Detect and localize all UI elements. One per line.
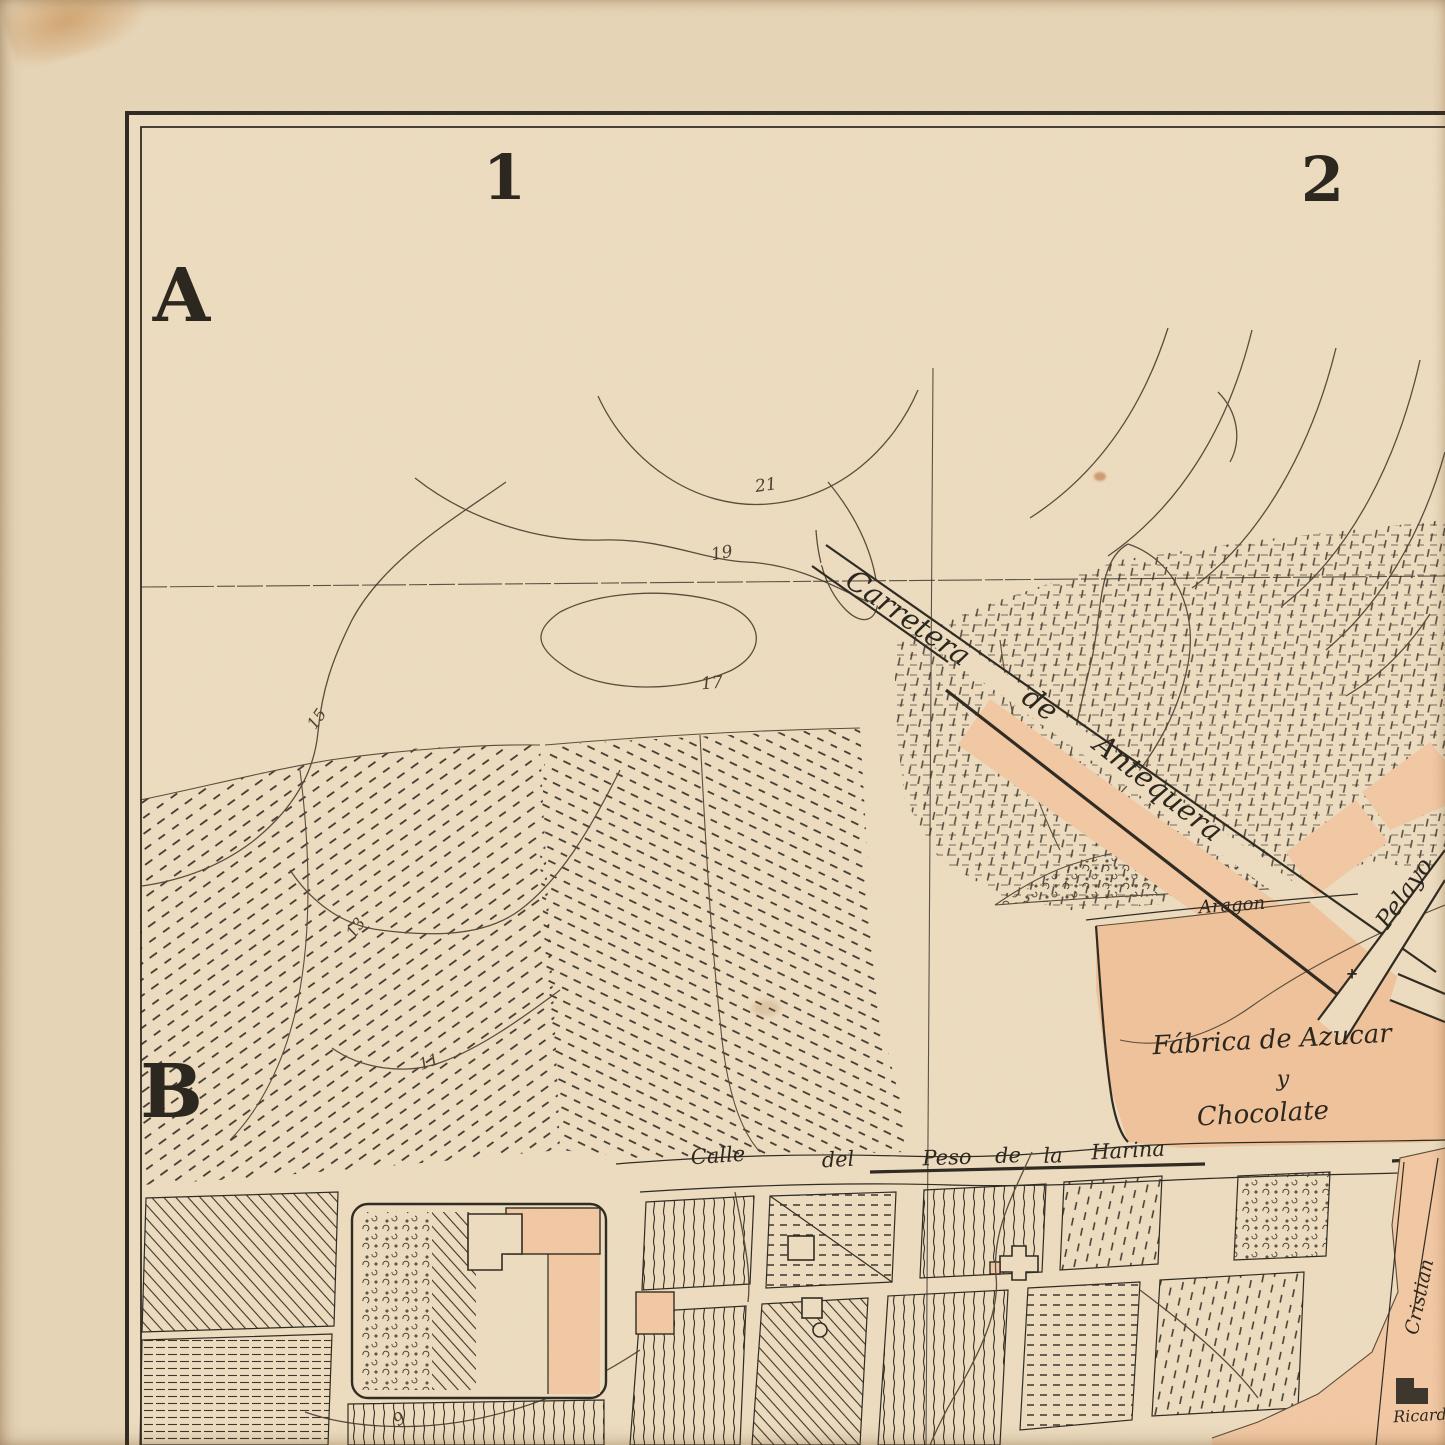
label-elev-21: 21 (754, 476, 778, 496)
label-elev-17: 17 (700, 675, 723, 694)
label-fabrica-3: Chocolate (1196, 1098, 1329, 1131)
label-elev-13: 13 (344, 915, 369, 941)
label-calle-5: la (1043, 1145, 1063, 1167)
label-fabrica-2: y (1277, 1069, 1289, 1091)
label-calle-6: Harina (1091, 1139, 1166, 1164)
label-calle-3: Peso (922, 1147, 972, 1170)
label-col-2: 2 (1301, 149, 1345, 211)
label-carretera-1: Carretera (841, 565, 976, 672)
map-labels: 12AB2119171513119CarreteradeAntequeraAra… (0, 0, 1445, 1445)
label-elev-11: 11 (417, 1051, 442, 1073)
label-pelayo: Pelayo (1371, 854, 1436, 933)
label-fabrica-1: Fábrica de Azucar (1152, 1021, 1393, 1059)
map-sheet: 12AB2119171513119CarreteradeAntequeraAra… (0, 0, 1445, 1445)
label-elev-9: 9 (391, 1410, 410, 1430)
label-col-1: 1 (483, 147, 527, 209)
label-row-a: A (153, 259, 211, 333)
label-carretera-2: de (1017, 682, 1063, 726)
label-calle-1: Calle (690, 1144, 746, 1169)
label-row-b: B (140, 1055, 204, 1129)
label-cross: + (1346, 967, 1359, 982)
label-calle-2: del (821, 1149, 855, 1172)
label-ricardo: Ricard (1393, 1407, 1445, 1426)
label-elev-19: 19 (710, 544, 734, 564)
label-carretera-3: Antequera (1088, 729, 1227, 847)
label-calle-4: de (995, 1145, 1022, 1167)
label-aragon: Aragon (1198, 895, 1265, 918)
label-cristian: Cristian (1403, 1257, 1438, 1336)
label-elev-15: 15 (305, 706, 330, 732)
